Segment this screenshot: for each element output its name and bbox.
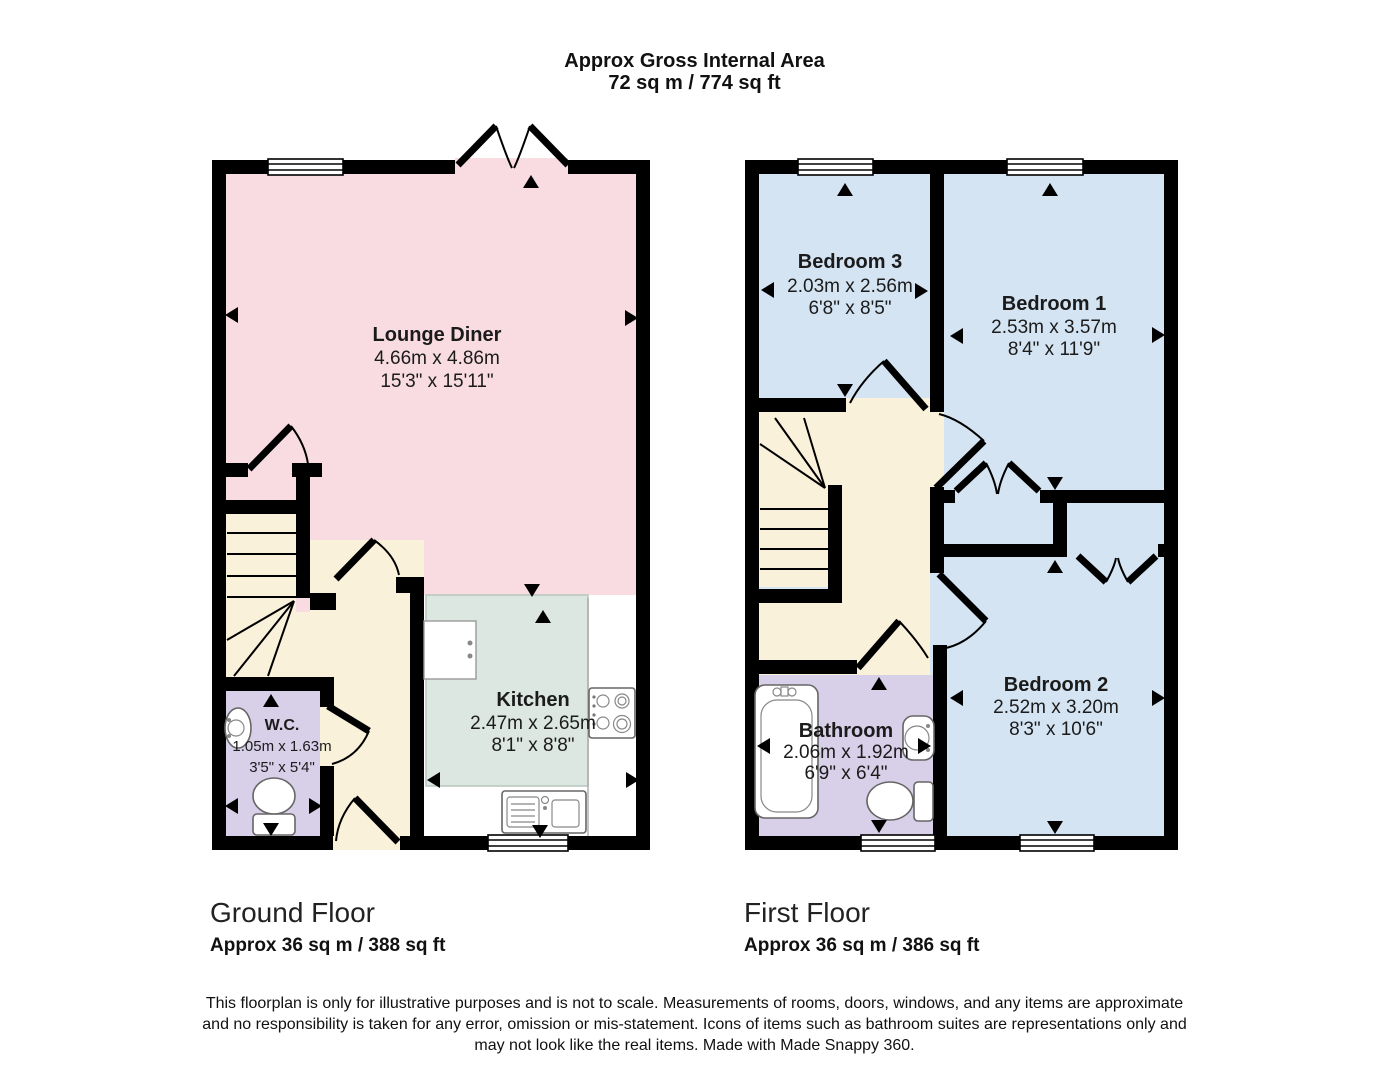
- bathroom-imperial-label: 6'9" x 6'4": [804, 763, 887, 784]
- ground-floor-area: Approx 36 sq m / 388 sq ft: [210, 935, 630, 957]
- wc-name-label: W.C.: [265, 717, 300, 734]
- bathroom-metric-label: 2.06m x 1.92m: [783, 742, 909, 763]
- wc-metric-label: 1.05m x 1.63m: [232, 738, 331, 755]
- window: [488, 835, 568, 851]
- window: [798, 159, 873, 175]
- ground-floor-plan: Lounge Diner 4.66m x 4.86m 15'3" x 15'11…: [212, 126, 650, 851]
- kitchen-name-label: Kitchen: [496, 689, 569, 711]
- first-floor-name: First Floor: [744, 898, 1164, 928]
- hob-icon: [589, 688, 635, 738]
- disclaimer-line3: may not look like the real items. Made w…: [145, 1035, 1245, 1056]
- kitchen-imperial-label: 8'1" x 8'8": [491, 735, 574, 756]
- disclaimer-text: This floorplan is only for illustrative …: [145, 993, 1245, 1056]
- disclaimer-line1: This floorplan is only for illustrative …: [145, 993, 1245, 1014]
- bedroom2-name-label: Bedroom 2: [1004, 674, 1108, 696]
- bedroom2-imperial-label: 8'3" x 10'6": [1009, 719, 1103, 740]
- bedroom1-name-label: Bedroom 1: [1002, 293, 1106, 315]
- bedroom2-metric-label: 2.52m x 3.20m: [993, 697, 1119, 718]
- wc-imperial-label: 3'5" x 5'4": [249, 759, 315, 776]
- first-floor-area: Approx 36 sq m / 386 sq ft: [744, 935, 1164, 957]
- ground-floor-caption: Ground Floor Approx 36 sq m / 388 sq ft: [210, 898, 630, 957]
- window: [268, 159, 343, 175]
- bedroom1-imperial-label: 8'4" x 11'9": [1008, 339, 1100, 360]
- window: [861, 835, 935, 851]
- bathroom-name-label: Bathroom: [799, 720, 893, 742]
- kitchen-metric-label: 2.47m x 2.65m: [470, 713, 596, 734]
- disclaimer-line2: and no responsibility is taken for any e…: [145, 1014, 1245, 1035]
- lounge-imperial-label: 15'3" x 15'11": [380, 371, 493, 392]
- bedroom3-imperial-label: 6'8" x 8'5": [808, 298, 891, 319]
- window: [1020, 835, 1094, 851]
- window: [1007, 159, 1083, 175]
- floorplan-canvas: Approx Gross Internal Area 72 sq m / 774…: [0, 0, 1389, 1080]
- landing-doorway: [930, 412, 944, 487]
- lounge-metric-label: 4.66m x 4.86m: [374, 348, 500, 369]
- floorplan-drawing: Lounge Diner 4.66m x 4.86m 15'3" x 15'11…: [0, 0, 1389, 1080]
- bathroom-toilet-icon: [867, 782, 933, 821]
- bedroom1-metric-label: 2.53m x 3.57m: [991, 317, 1117, 338]
- kitchen-appliance-icon: [424, 621, 476, 679]
- first-floor-plan: Bedroom 3 2.03m x 2.56m 6'8" x 8'5" Bedr…: [745, 159, 1178, 851]
- bedroom3-metric-label: 2.03m x 2.56m: [787, 276, 913, 297]
- staircase-area-ground: [226, 514, 296, 677]
- bedroom3-name-label: Bedroom 3: [798, 251, 902, 273]
- lounge-name-label: Lounge Diner: [373, 324, 502, 346]
- first-floor-caption: First Floor Approx 36 sq m / 386 sq ft: [744, 898, 1164, 957]
- ground-floor-name: Ground Floor: [210, 898, 630, 928]
